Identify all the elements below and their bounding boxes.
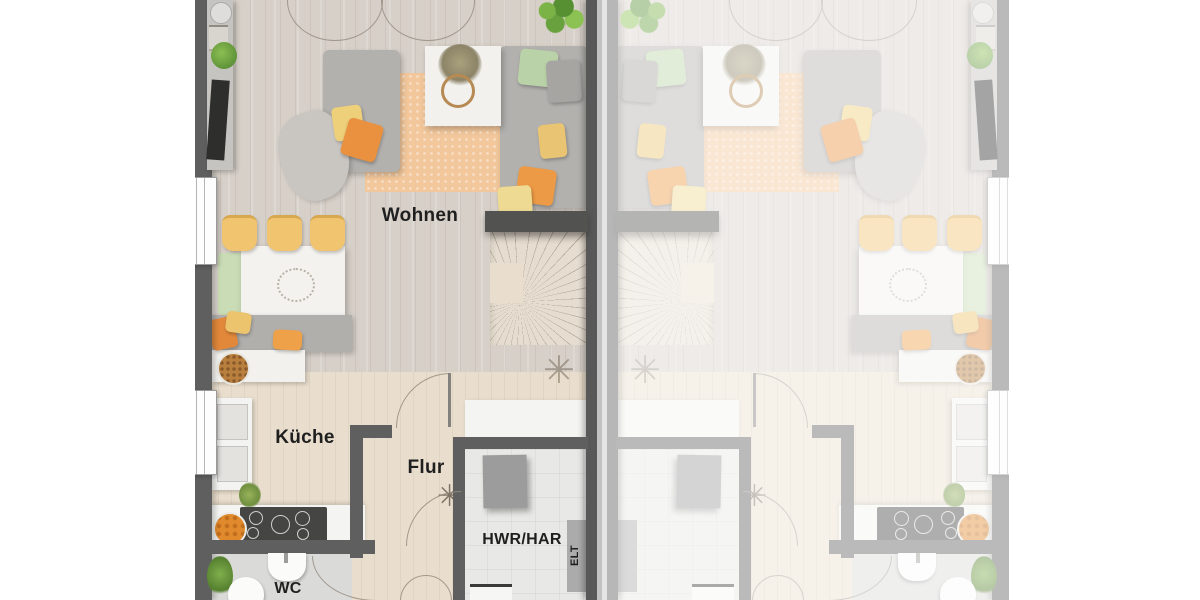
washing-machine: [483, 455, 528, 509]
interior-wall: [195, 540, 375, 554]
dried-plant-decor: ✳: [543, 352, 575, 390]
half-wall-shelf: [485, 211, 588, 232]
appliance: [470, 584, 512, 600]
party-wall: [586, 0, 597, 600]
potted-plant: [211, 42, 237, 69]
burner: [295, 511, 310, 526]
decorative-tray: [441, 74, 475, 108]
door-leaf: [448, 373, 451, 427]
dining-chair: [267, 215, 302, 251]
floorplan-canvas: ✳ ✳ Wohnen Küche Flur HWR/HAR WC ELT: [0, 0, 1200, 600]
room-label-kitchen: Küche: [255, 427, 355, 449]
room-label-utility: HWR/HAR: [462, 531, 582, 549]
room-label-hall: Flur: [376, 457, 476, 479]
dining-chair: [310, 215, 345, 251]
party-wall-gap: [597, 0, 602, 600]
unit-left: ✳ ✳ Wohnen Küche Flur HWR/HAR WC ELT: [195, 0, 602, 600]
cabinet-compartment: [217, 404, 248, 440]
burner: [271, 515, 290, 534]
corner-plant: [531, 0, 585, 36]
cushion: [225, 310, 253, 334]
interior-wall: [453, 437, 588, 449]
speaker: [210, 2, 232, 24]
unit-right: ✳ ✳: [602, 0, 1009, 600]
burner: [249, 511, 263, 525]
burner: [297, 528, 309, 540]
faucet: [284, 553, 288, 563]
burner: [247, 527, 259, 539]
room-label-wc: WC: [258, 580, 318, 598]
room-label-living: Wohnen: [355, 205, 485, 227]
cushion: [272, 329, 302, 350]
room-label-electrical: ELT: [569, 524, 587, 588]
staircase-landing: [490, 263, 523, 303]
cabinet-compartment: [217, 446, 248, 482]
window: [195, 177, 217, 265]
dining-chair: [222, 215, 257, 251]
bowl: [217, 352, 250, 385]
cushion: [546, 59, 583, 103]
table-centerpiece: [277, 268, 315, 302]
fade-overlay: [602, 0, 1009, 600]
cushion: [537, 123, 567, 160]
herb-pot: [239, 482, 261, 508]
utility-counter: [465, 400, 588, 437]
window: [195, 390, 217, 475]
